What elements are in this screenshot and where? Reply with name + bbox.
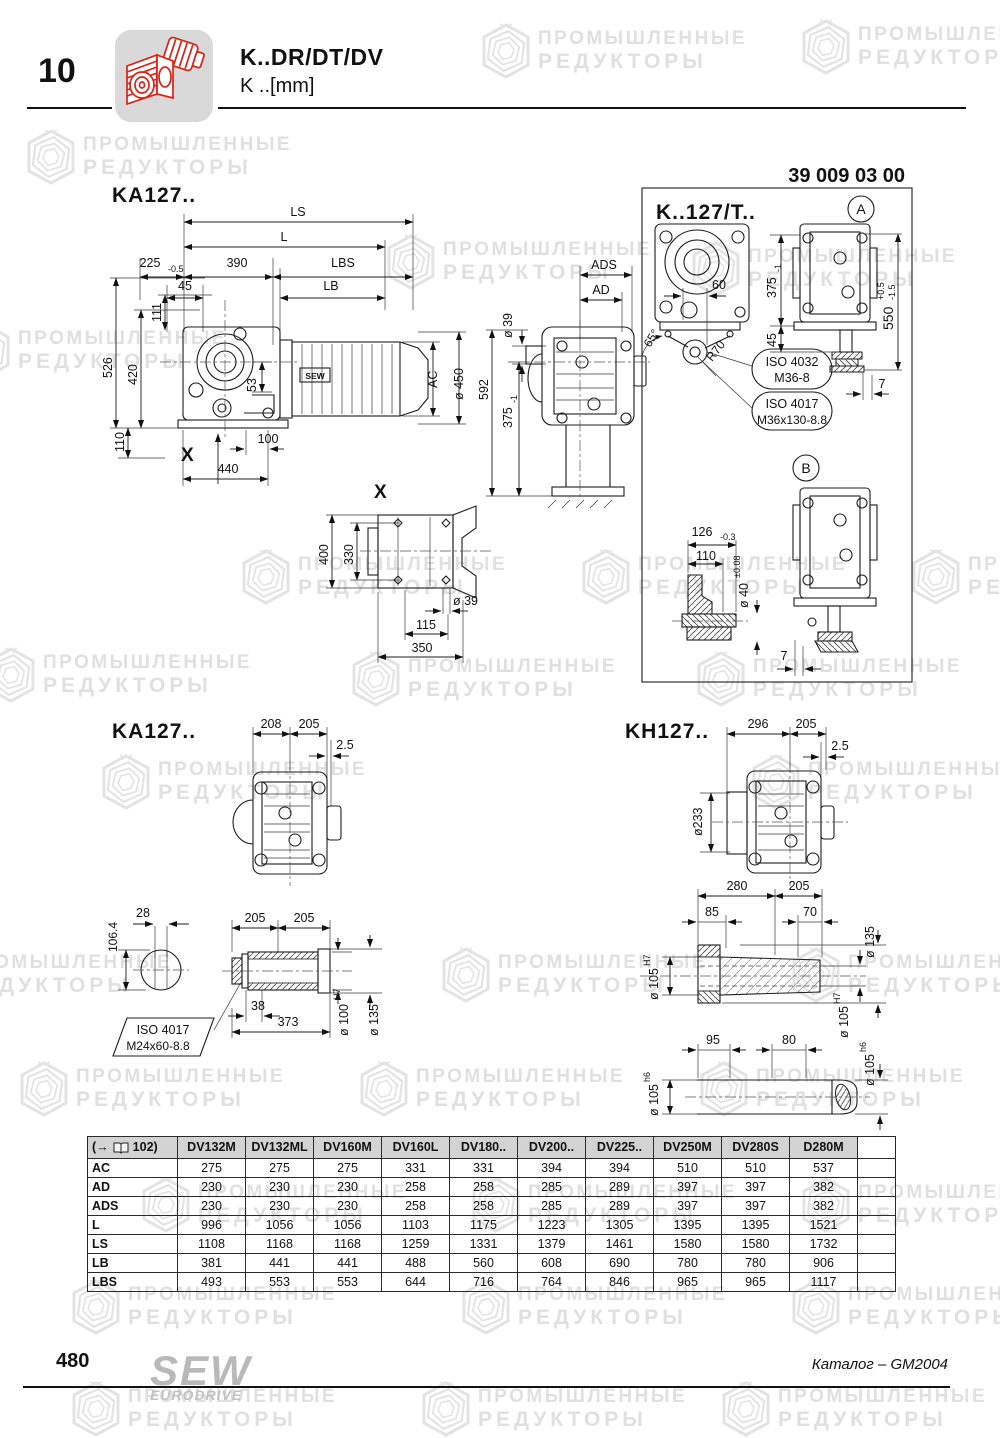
dim-ads: ADS [591,258,617,272]
dim-ls: LS [290,205,305,219]
svg-text:375: 375 [501,407,515,428]
watermark-line2: РЕДУКТОРЫ [128,1408,337,1432]
watermark-swirl-icon [720,1380,772,1438]
svg-text:ø 105: ø 105 [647,968,661,1000]
x-view-title: X [374,482,387,503]
dimension-table: (→ 102) DV132M DV132ML DV160M DV160L DV1… [87,1136,896,1292]
part-number: 39 009 03 00 [788,165,905,187]
drawing-ka127-main: KA127.. LS L 225 -0.5 [101,184,466,486]
callout-shaft-line2: M24x60-8.8 [126,1039,190,1053]
svg-text:H7: H7 [832,992,842,1004]
dim-2-5: 2.5 [336,738,353,752]
dim-110b: 110 [696,549,716,563]
dim-105h6-left-label: ø 105 h6 [642,1072,661,1116]
table-row: AD 230230230258258285289397397382 [88,1178,896,1197]
dim-100h7-label: ø 100 H7 [332,988,351,1036]
column-header: DV132M [178,1137,246,1159]
dim-2-5: 2.5 [831,739,848,753]
dim-592: 592 [477,379,491,400]
dim-65deg: 65° [641,327,663,350]
svg-text:ø 100: ø 100 [337,1004,351,1036]
column-header: DV225.. [586,1137,654,1159]
svg-text:ø 105: ø 105 [863,1054,877,1086]
column-header: DV132ML [246,1137,314,1159]
drawing-k127t-panel: K..127/T.. A 60 65° R70 ISO 4032 M36-8 I… [641,188,912,682]
column-header: DV200.. [518,1137,586,1159]
dim-111: 111 [150,303,164,322]
section-number: 10 [38,52,76,91]
callout-iso4032-line2: M36-8 [774,371,809,385]
dim-400: 400 [317,544,331,565]
svg-text:-1: -1 [509,395,519,403]
svg-text:ø 105: ø 105 [837,1006,851,1038]
dim-38: 38 [251,999,265,1013]
dim-70: 70 [803,905,817,919]
dim-205: 205 [789,879,810,893]
dim-110: 110 [113,432,127,452]
dim-45: 45 [178,279,192,293]
drawing-kh-hollow-shaft: 280 205 85 70 ø 135 ø 105 H7 ø 105 H7 95… [640,879,888,1130]
dim-296: 296 [748,717,769,731]
dim-233: ø233 [691,807,705,836]
dim-40-label: ø 40 ±0.08 [732,556,751,608]
column-header: D280M [790,1137,858,1159]
gearmotor-icon [115,30,213,122]
eurodrive-logo-text: EURODRIVE [150,1388,252,1402]
dim-115: 115 [416,618,436,632]
watermark-line2: РЕДУКТОРЫ [478,1408,687,1432]
column-header: DV250M [654,1137,722,1159]
svg-text:+0.5: +0.5 [876,282,886,300]
dim-375-label: 375 -1 [501,395,519,428]
column-header: DV280S [722,1137,790,1159]
drawing-title: KA127.. [112,720,196,743]
drawing-kh127-flange: KH127.. 296 205 2.5 ø233 [625,717,849,886]
dim-28: 28 [136,906,150,920]
table-row: ADS 230230230258258285289397397382 [88,1197,896,1216]
drawing-rear-view: ADS AD ø 39 592 375 -1 [477,258,650,508]
dim-105h7-right-label: ø 105 H7 [832,992,851,1038]
section-marker-x: X [181,445,194,466]
dim-126: 126 [692,525,713,539]
svg-text:550: 550 [880,306,896,330]
svg-text:h6: h6 [642,1072,652,1082]
drawing-ka127-flange: KA127.. 208 205 2.5 [112,717,354,886]
svg-text:375: 375 [765,277,779,298]
dim-135: ø 135 [863,926,877,958]
dim-100: 100 [258,432,279,446]
watermark-line2: РЕДУКТОРЫ [778,1408,987,1432]
page-subtitle: K ..[mm] [240,75,384,98]
watermark: ПРОМЫШЛЕННЫЕ РЕДУКТОРЫ [720,1380,987,1438]
technical-drawings: 39 009 03 00 KA127.. L [0,0,1000,1135]
dim-ad: AD [592,283,609,297]
drawing-x-view: X 400 330 ø 39 115 350 [317,482,492,663]
table-row: LB 381441441488560608690780780906 [88,1254,896,1273]
dim-390: 390 [227,256,248,270]
dim-105h7-left-label: ø 105 H7 [642,954,661,1000]
watermark-line2: РЕДУКТОРЫ [848,1306,1000,1330]
dim-lbs: LBS [331,256,355,270]
column-header: DV160M [314,1137,382,1159]
dim-440: 440 [218,462,239,476]
callout-shaft-line1: ISO 4017 [137,1023,190,1037]
watermark-swirl-icon [420,1380,472,1438]
dim-450: ø 450 [452,368,466,400]
ref-prefix: (→ [92,1141,109,1154]
detail-marker-b: B [801,460,810,476]
book-icon [113,1142,129,1154]
callout-iso4017-line1: ISO 4017 [766,397,819,411]
header-rule-right [218,107,966,109]
table-header-row: (→ 102) DV132M DV132ML DV160M DV160L DV1… [88,1137,896,1159]
dim-526: 526 [101,357,115,378]
dim-39: ø 39 [453,594,478,608]
drawing-shaft-detail: 28 106.4 205 205 38 373 ø 100 H7 ø 135 I… [106,906,382,1056]
page-title-block: K..DR/DT/DV K ..[mm] [240,44,384,98]
dim-205a: 205 [245,911,266,925]
dim-205: 205 [796,717,817,731]
sew-logo: SEW EURODRIVE [150,1350,252,1402]
watermark: ПРОМЫШЛЕННЫЕ РЕДУКТОРЫ [420,1380,687,1438]
svg-text:±0.08: ±0.08 [732,556,742,578]
dim-45a: 45 [765,333,779,347]
watermark-line1: ПРОМЫШЛЕННЫЕ [778,1386,987,1408]
column-header: DV180.. [450,1137,518,1159]
dim-126-tol: -0.3 [720,532,736,542]
column-header-empty [858,1137,896,1159]
dim-l: L [281,230,288,244]
svg-text:ø 105: ø 105 [647,1084,661,1116]
drawing-title: KA127.. [112,184,196,207]
header-rule-left [27,107,112,109]
watermark-line1: ПРОМЫШЛЕННЫЕ [478,1386,687,1408]
dim-225: 225 [140,256,161,270]
dim-80: 80 [782,1033,796,1047]
dim-135-label: ø 135 [367,1004,381,1036]
dim-53: 53 [245,378,259,392]
callout-iso4017-line2: M36x130-8.8 [757,413,827,427]
column-header: DV160L [382,1137,450,1159]
watermark-swirl-icon [70,1380,122,1438]
dim-350: 350 [412,641,433,655]
table-row: L 99610561056110311751223130513951395152… [88,1216,896,1235]
dim-60: 60 [712,278,726,292]
dim-373: 373 [278,1015,299,1029]
dim-225-tol: -0.5 [168,264,184,274]
dim-205b: 205 [294,911,315,925]
motor-brand-label: SEW [305,371,325,381]
dim-420: 420 [126,364,140,385]
dim-106-4: 106.4 [106,922,120,952]
page-number: 480 [56,1350,89,1373]
ref-suffix: 102) [133,1141,158,1154]
dim-lb: LB [323,279,338,293]
dim-39: ø 39 [501,313,515,338]
dim-375a-label: 375 -1 [765,264,783,298]
detail-marker-a: A [856,201,866,217]
svg-text:ø 40: ø 40 [737,583,751,608]
product-icon-box [115,30,213,122]
svg-text:-1.5: -1.5 [887,284,897,300]
dim-85: 85 [705,905,719,919]
dim-7a: 7 [879,377,886,391]
dim-208: 208 [261,717,282,731]
watermark-line2: РЕДУКТОРЫ [518,1306,727,1330]
drawing-title: KH127.. [625,720,709,743]
watermark-line2: РЕДУКТОРЫ [128,1306,337,1330]
table-row: LS 1108116811681259133113791461158015801… [88,1235,896,1254]
dim-550-label: 550 +0.5 -1.5 [876,282,897,330]
sew-logo-text: SEW [150,1350,252,1392]
dim-105h6-right-label: ø 105 h6 [858,1042,877,1086]
svg-text:H7: H7 [332,988,342,1000]
table-row: AC 275275275331331394394510510537 [88,1159,896,1178]
dim-280: 280 [727,879,748,893]
svg-text:h6: h6 [858,1042,868,1052]
page-title: K..DR/DT/DV [240,44,384,71]
table-ref-cell: (→ 102) [88,1137,178,1159]
catalog-reference: Каталог – GM2004 [812,1356,948,1373]
table-row: LBS 4935535536447167648469659651117 [88,1273,896,1292]
svg-text:H7: H7 [642,954,652,966]
dim-95: 95 [706,1033,720,1047]
dim-330: 330 [342,544,356,565]
callout-iso4032-line1: ISO 4032 [766,355,819,369]
dim-205: 205 [299,717,320,731]
panel-title: K..127/T.. [656,201,756,224]
dim-7b: 7 [781,649,788,663]
svg-text:-1: -1 [773,264,783,272]
